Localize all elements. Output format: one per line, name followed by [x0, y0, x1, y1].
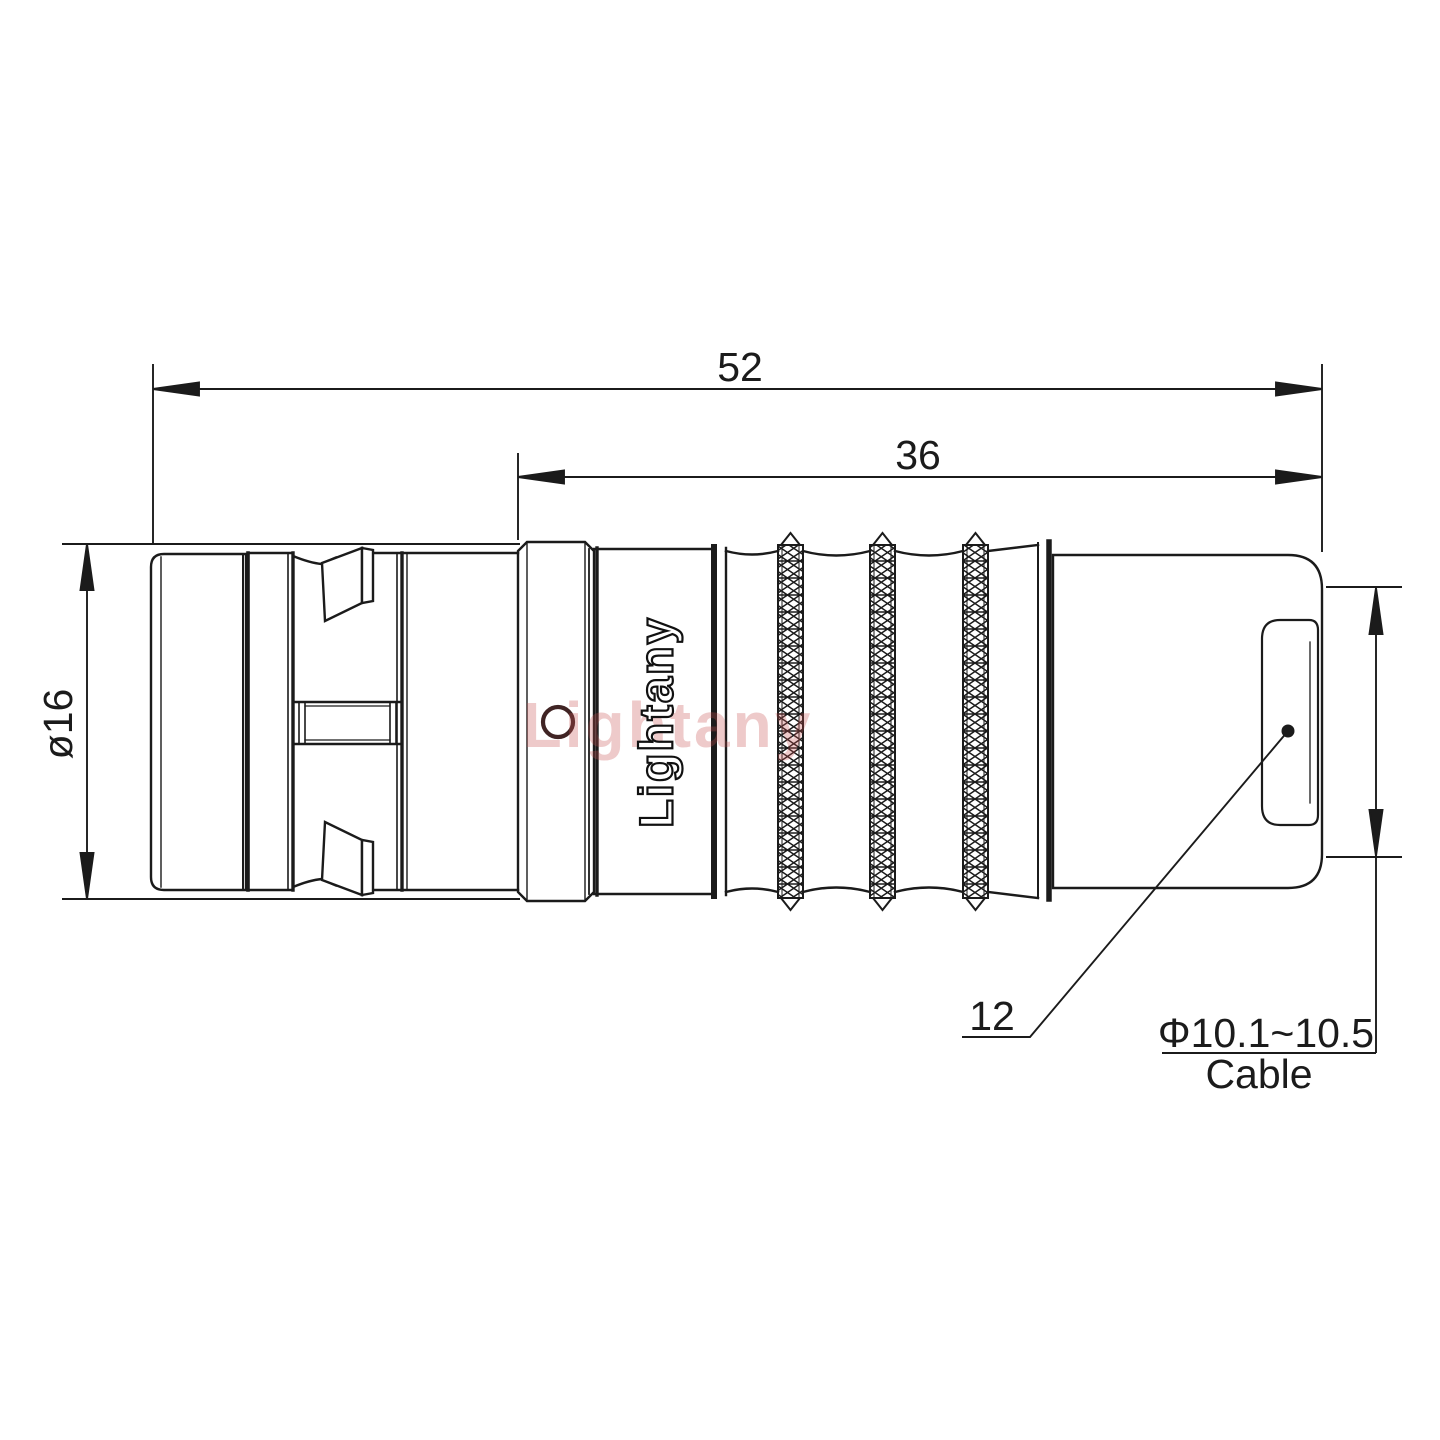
- upper-key-tab: [322, 548, 373, 621]
- dimension-cable-diameter: [1162, 587, 1402, 1053]
- slotted-key-section: [293, 548, 402, 895]
- dim-label-dia16: ø16: [35, 689, 81, 760]
- lower-key-tab: [322, 822, 373, 895]
- ring-section: [248, 553, 293, 890]
- arrowhead-up: [81, 544, 94, 590]
- arrowhead-down: [81, 853, 94, 899]
- cable-entry-dot: [1282, 725, 1295, 738]
- arrowhead-down: [1370, 810, 1383, 856]
- logo-text: Lightany: [630, 616, 683, 828]
- arrowhead-up: [1370, 588, 1383, 634]
- mid-section: [402, 553, 518, 890]
- dimension-overall-length: [153, 364, 1322, 552]
- knurl-band: [870, 533, 895, 910]
- rear-flange: [1038, 542, 1049, 899]
- arrowhead-left: [518, 471, 564, 484]
- front-nose-section: [151, 553, 248, 890]
- drawing-page: Lightany Lightany 52 36 ø16: [0, 0, 1440, 1440]
- rear-cap: [1053, 555, 1322, 888]
- arrowhead-right: [1276, 383, 1322, 396]
- arrowhead-right: [1276, 471, 1322, 484]
- dim-label-cable-range: Φ10.1~10.5: [1158, 1010, 1374, 1056]
- dim-label-cable-word: Cable: [1205, 1051, 1312, 1097]
- knurl-band: [963, 533, 988, 910]
- dim-label-52: 52: [717, 344, 763, 390]
- dim-label-12: 12: [969, 993, 1015, 1039]
- technical-drawing: Lightany Lightany 52 36 ø16: [0, 0, 1440, 1440]
- dimension-diameter-16: [62, 544, 520, 899]
- arrowhead-left: [153, 383, 199, 396]
- dimension-rear-face-leader: [962, 725, 1295, 1038]
- dim-label-36: 36: [895, 432, 941, 478]
